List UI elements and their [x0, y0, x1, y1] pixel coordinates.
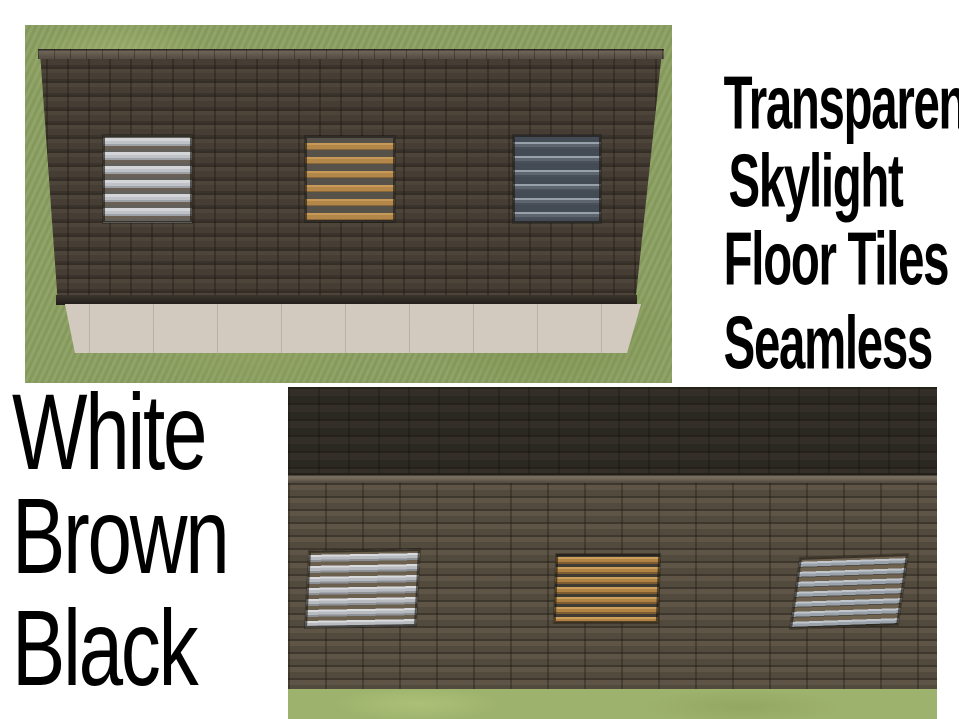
skylight-black	[513, 135, 601, 223]
title-line-3: Floor Tiles	[724, 219, 908, 299]
roof-closeup-photo	[288, 387, 937, 719]
variant-label-black: Black	[12, 596, 215, 700]
grass-lawn-strip	[288, 689, 937, 719]
roof-ridge-cap	[38, 49, 664, 59]
title-line-2: Skylight	[724, 141, 908, 221]
exterior-overview-photo	[25, 25, 672, 383]
skylight-black-closeup	[790, 554, 908, 629]
variant-labels: White Brown Black	[12, 380, 286, 700]
title-line-1: Transparent	[724, 63, 908, 143]
skylight-white	[103, 135, 192, 223]
skylight-white-closeup	[305, 549, 420, 628]
skylight-brown	[305, 136, 395, 222]
roof-eave-shadow	[56, 295, 637, 305]
skylight-brown-closeup	[554, 554, 660, 623]
variant-label-brown: Brown	[12, 484, 215, 588]
promo-image: Transparent Skylight Floor Tiles Seamles…	[0, 0, 959, 719]
title-tagline: Seamless	[724, 303, 908, 383]
variant-label-white: White	[12, 380, 215, 484]
roof-ridge-highlight	[288, 473, 937, 483]
roof-far-slope	[288, 387, 937, 473]
title-text: Transparent Skylight Floor Tiles Seamles…	[672, 64, 959, 382]
